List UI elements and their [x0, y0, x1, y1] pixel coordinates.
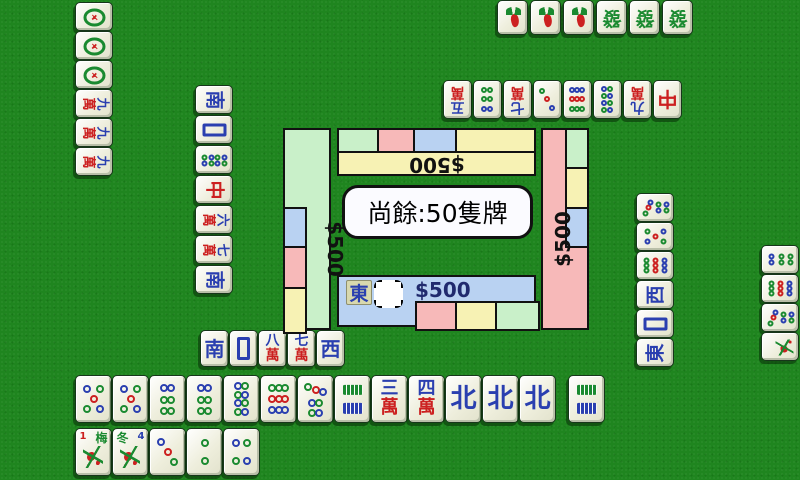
- wall-segment: [283, 246, 307, 289]
- top-player-discards: 五萬七萬九萬中: [443, 80, 682, 119]
- tile-七萬: 七萬: [195, 235, 233, 264]
- wall-segment: [413, 128, 457, 153]
- tile-一筒: [75, 60, 113, 89]
- tile-五筒[interactable]: [75, 375, 112, 423]
- tile-梅: 1梅: [75, 428, 112, 476]
- wall-segment: [565, 128, 589, 169]
- tile-七萬: 七萬: [503, 80, 532, 119]
- tile-西: 西: [316, 330, 345, 367]
- right-player-discards: 西東: [636, 193, 674, 367]
- tile-北[interactable]: 北: [445, 375, 482, 423]
- mahjong-table: 九萬九萬九萬 南中六萬七萬南 發發發 五萬七萬九萬中 西東 南八萬七萬西 三萬四…: [0, 0, 800, 480]
- tile-一索: [563, 0, 594, 35]
- tile-七萬: 七萬: [287, 330, 316, 367]
- tile-西: 西: [636, 280, 674, 309]
- tile-南: 南: [195, 85, 233, 114]
- bottom-player-discards: 南八萬七萬西: [200, 330, 345, 367]
- left-player-melds: 九萬九萬九萬: [75, 2, 113, 176]
- tile-八筒[interactable]: [223, 375, 260, 423]
- tile-北[interactable]: 北: [482, 375, 519, 423]
- wall-right: $500: [541, 128, 589, 330]
- tile-東: 東: [636, 338, 674, 367]
- wall-segment: [337, 128, 379, 153]
- wall-segment: [415, 301, 457, 331]
- wall-segment: [565, 167, 589, 209]
- right-player-money: $500: [551, 211, 575, 267]
- tile-一筒: [75, 2, 113, 31]
- tile-九萬: 九萬: [75, 89, 113, 118]
- tile-七筒[interactable]: [297, 375, 334, 423]
- tile-六筒: [761, 245, 799, 274]
- player-hand[interactable]: 三萬四萬北北北: [75, 375, 556, 423]
- tile-二索[interactable]: [568, 375, 605, 423]
- wall-left: $500: [283, 128, 331, 330]
- tile-中: 中: [653, 80, 682, 119]
- tile-發: 發: [629, 0, 660, 35]
- tile-三筒: [149, 428, 186, 476]
- tile-四筒: [223, 428, 260, 476]
- tile-白: [229, 330, 258, 367]
- tile-九筒: [563, 80, 592, 119]
- tile-九萬: 九萬: [75, 147, 113, 176]
- tile-白: [195, 115, 233, 144]
- tile-三筒: [533, 80, 562, 119]
- tiles-remaining-text: 尚餘:50隻牌: [367, 194, 507, 230]
- wall-segment: [495, 301, 540, 331]
- tile-八筒: [195, 145, 233, 174]
- tile-九筒: [636, 251, 674, 280]
- selection-focus-box[interactable]: [374, 280, 403, 308]
- wall-segment: [283, 287, 307, 334]
- tile-花: [761, 332, 799, 361]
- tile-中: 中: [195, 175, 233, 204]
- tile-七筒: [761, 303, 799, 332]
- drawn-tile-slot[interactable]: [568, 375, 605, 423]
- tiles-remaining-bubble: 尚餘:50隻牌: [342, 185, 533, 239]
- bottom-player-money: $500: [415, 278, 471, 302]
- wall-segment: [283, 207, 307, 248]
- tile-六筒: [473, 80, 502, 119]
- tile-三萬[interactable]: 三萬: [371, 375, 408, 423]
- wall-top: $500: [337, 128, 536, 176]
- tile-六萬: 六萬: [195, 205, 233, 234]
- right-player-melds: [761, 245, 799, 361]
- left-player-discards: 南中六萬七萬南: [195, 85, 233, 294]
- tile-二索[interactable]: [334, 375, 371, 423]
- tile-八筒: [593, 80, 622, 119]
- wall-bottom: 東 $500: [337, 275, 536, 327]
- tile-六筒[interactable]: [186, 375, 223, 423]
- player-flowers-melds: 1梅4冬: [75, 428, 260, 476]
- tile-南: 南: [200, 330, 229, 367]
- tile-冬: 4冬: [112, 428, 149, 476]
- tile-四萬[interactable]: 四萬: [408, 375, 445, 423]
- tile-七筒: [636, 193, 674, 222]
- tile-九萬: 九萬: [623, 80, 652, 119]
- tile-一筒: [75, 31, 113, 60]
- tile-南: 南: [195, 265, 233, 294]
- tile-一索: [530, 0, 561, 35]
- tile-發: 發: [662, 0, 693, 35]
- tile-發: 發: [596, 0, 627, 35]
- tile-五筒[interactable]: [112, 375, 149, 423]
- dealer-wind-indicator: 東: [346, 280, 372, 305]
- tile-白: [636, 309, 674, 338]
- tile-九筒: [761, 274, 799, 303]
- tile-九筒[interactable]: [260, 375, 297, 423]
- top-player-melds: 發發發: [497, 0, 693, 35]
- tile-一索: [497, 0, 528, 35]
- tile-六筒[interactable]: [149, 375, 186, 423]
- top-player-money: $500: [409, 153, 465, 177]
- wall-segment: [455, 301, 497, 331]
- tile-九萬: 九萬: [75, 118, 113, 147]
- wall-segment: [377, 128, 415, 153]
- tile-八萬: 八萬: [258, 330, 287, 367]
- tile-北[interactable]: 北: [519, 375, 556, 423]
- tile-五萬: 五萬: [443, 80, 472, 119]
- tile-二筒: [186, 428, 223, 476]
- tile-五筒: [636, 222, 674, 251]
